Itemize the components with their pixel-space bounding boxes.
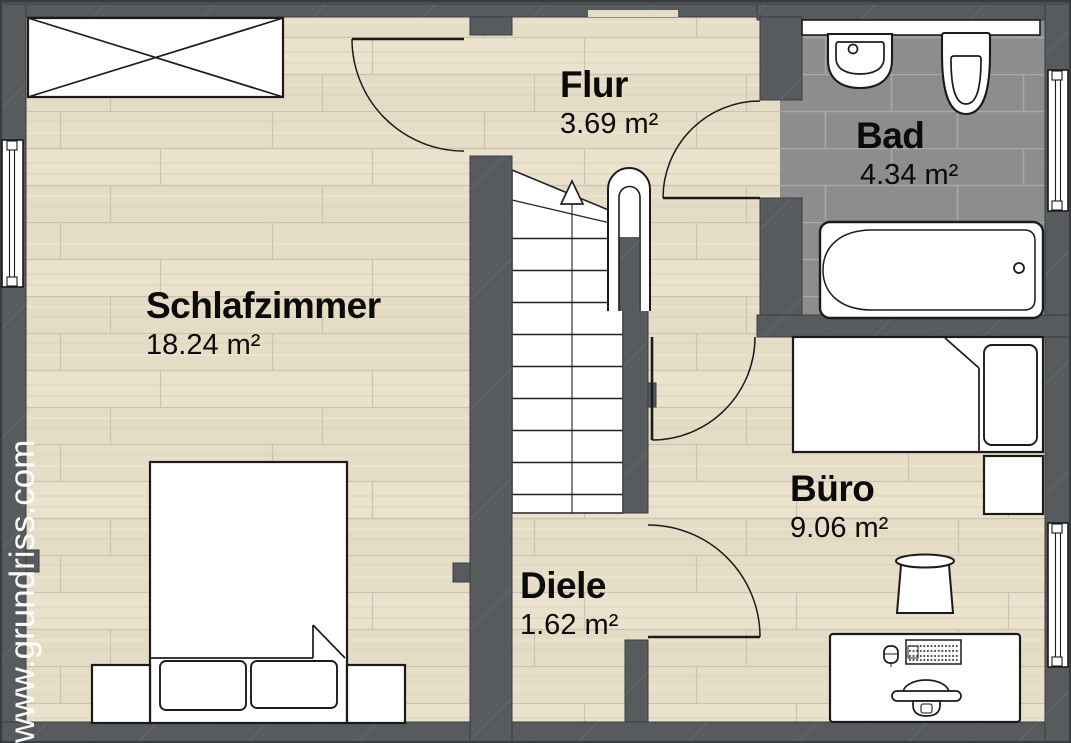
- wall-bottom: [0, 722, 1071, 743]
- floor-plan-drawing: [0, 0, 1071, 743]
- wall-stub-center: [453, 563, 470, 582]
- wardrobe: [28, 18, 283, 97]
- pillow: [984, 345, 1037, 445]
- handrail: [608, 168, 650, 311]
- keyboard: [906, 640, 961, 664]
- wall-stairs-east-lower: [625, 640, 648, 722]
- nightstand-left: [92, 665, 150, 723]
- pillow-right: [251, 661, 337, 708]
- staircase: [512, 170, 623, 513]
- nightstand-right: [347, 665, 405, 723]
- side-table: [984, 456, 1043, 514]
- window-buero-right: [1048, 523, 1068, 667]
- double-bed: [150, 462, 347, 723]
- washbasin: [828, 34, 892, 88]
- bathtub: [820, 222, 1043, 318]
- floor-plan: Schlafzimmer 18.24 m² Flur 3.69 m² Bad 4…: [0, 0, 1071, 743]
- wall-flur-bad-upper: [760, 17, 802, 100]
- stair-flight: [512, 170, 623, 513]
- desk: [830, 634, 1020, 722]
- wall-center: [470, 156, 512, 743]
- wall-door-jamb-top: [470, 17, 512, 35]
- stool: [896, 555, 954, 614]
- drain: [1014, 263, 1024, 273]
- single-bed: [793, 337, 1043, 452]
- toilet: [942, 33, 990, 114]
- window-left: [2, 140, 23, 287]
- pillow-left: [160, 661, 246, 710]
- window-bad-top: [802, 20, 1040, 35]
- window-bad-right: [1048, 70, 1068, 211]
- wall-niche: [588, 10, 678, 17]
- watermark: www.grundriss.com: [0, 363, 46, 743]
